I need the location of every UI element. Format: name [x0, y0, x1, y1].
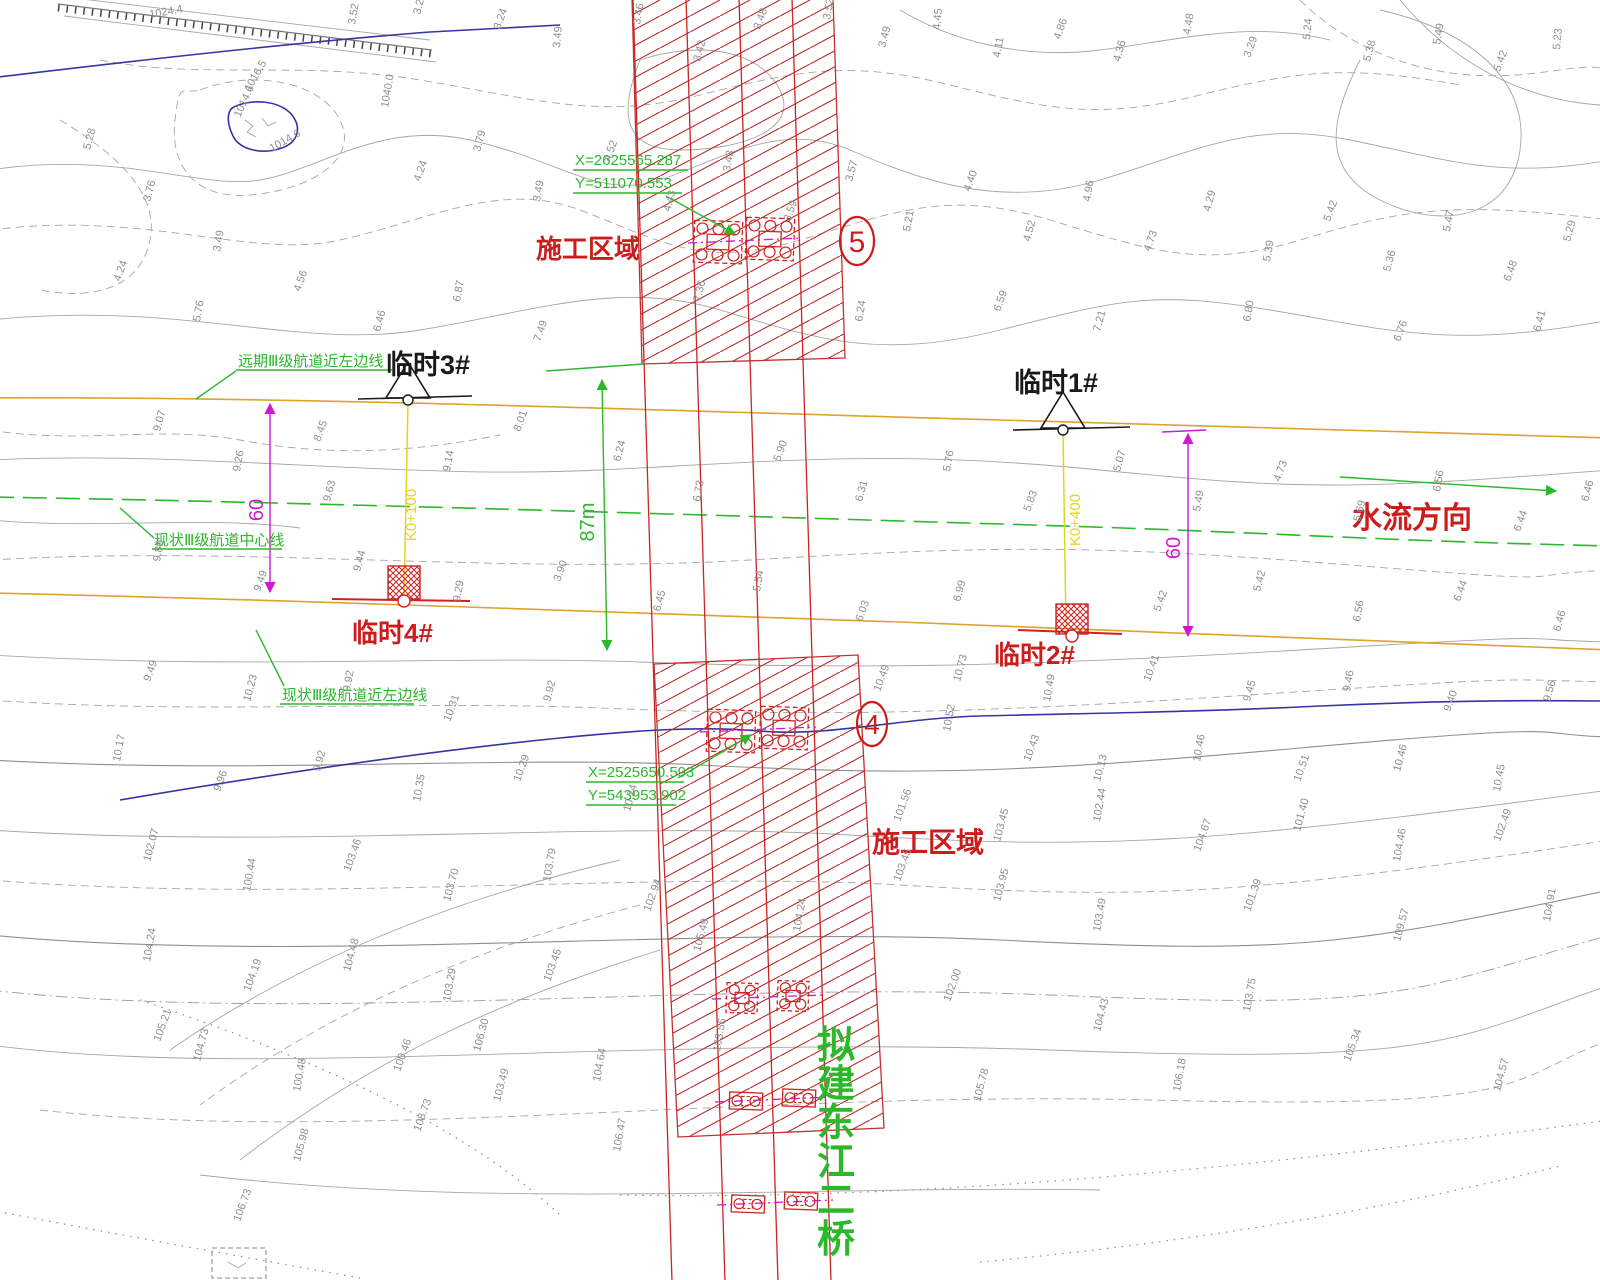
- survey-line-right: [1063, 432, 1066, 628]
- spot-elevation: 5.83: [1022, 489, 1041, 513]
- spot-elevation: 4.29: [1201, 189, 1218, 213]
- spot-elevation: 5.24: [1301, 18, 1315, 40]
- spot-elevation: 10.51: [1292, 753, 1313, 783]
- spot-elevation: 104.64: [591, 1047, 609, 1082]
- spot-elevation: 3.52: [346, 2, 362, 25]
- pier-number-4: 4: [864, 709, 880, 740]
- spot-elevation: 106.47: [611, 1117, 629, 1152]
- spot-elevation: 104.73: [191, 1027, 211, 1063]
- spot-elevation: 6.44: [1512, 509, 1531, 533]
- spot-elevation: 5.49: [1431, 22, 1447, 45]
- spot-elevation: 5.54: [751, 569, 767, 592]
- spot-elevation: 3.90: [552, 559, 571, 583]
- spot-elevation: 4.11: [991, 36, 1006, 58]
- spot-elevation: 4.36: [1111, 39, 1128, 63]
- temp4-label: 临时4#: [352, 618, 433, 648]
- survey-station-temp4: [332, 566, 470, 607]
- spot-elevation: 106.18: [1171, 1057, 1189, 1092]
- spot-elevation: 108.73: [412, 1097, 435, 1133]
- spot-elevation: 10.29: [512, 753, 533, 783]
- hatched-square-symbol: [388, 566, 420, 599]
- spot-elevation: 3.49: [551, 26, 565, 48]
- spot-elevation: 6.24: [611, 439, 628, 463]
- spot-elevation: 9.92: [311, 749, 328, 773]
- dimension-value: 60: [246, 499, 268, 521]
- spot-elevation: 10.13: [1091, 753, 1110, 783]
- spot-elevation: 103.29: [441, 967, 459, 1002]
- railway-rail: [58, 4, 432, 50]
- spot-elevation: 9.29: [451, 579, 467, 602]
- spot-elevation: 9.92: [541, 679, 558, 703]
- spot-elevation: 104.91: [1541, 887, 1559, 922]
- spot-elevation: 5.42: [1251, 569, 1268, 593]
- survey-station-temp2: [1018, 604, 1122, 642]
- zone4-area-label: 施工区域: [872, 827, 984, 858]
- spot-elevation: 5.28: [81, 127, 98, 151]
- spot-elevation: 4.24: [412, 159, 431, 183]
- spot-elevation: 105.21: [152, 1007, 175, 1043]
- spot-elevation: 103.95: [991, 867, 1011, 903]
- spot-elevation: 6.41: [1531, 309, 1548, 333]
- spot-elevation: 3.76: [141, 179, 158, 203]
- spot-elevation: 102.44: [1091, 787, 1109, 822]
- spot-elevation: 10.45: [1491, 763, 1508, 792]
- railway-topleft: [0, 0, 560, 78]
- spot-elevation: 9.45: [1241, 679, 1258, 703]
- spot-elevation: 103.79: [541, 847, 559, 882]
- spot-elevation: 3.49: [531, 179, 547, 202]
- spot-elevation: 9.89: [151, 539, 167, 562]
- spot-elevation: 104.57: [1491, 1057, 1511, 1093]
- spot-elevation: 6.48: [1502, 259, 1521, 283]
- spot-elevation: 8.45: [312, 419, 331, 443]
- spot-elevation: 104.43: [1091, 997, 1111, 1033]
- temp2-label: 临时2#: [994, 640, 1075, 670]
- spot-elevation: 10.17: [111, 733, 128, 762]
- spot-elevation: 4.45: [931, 8, 945, 30]
- spot-elevation: 6.03: [854, 599, 873, 623]
- spot-elevation: 5.21: [901, 209, 917, 232]
- spot-elevation: 6.31: [853, 479, 870, 503]
- spot-elevation: 10.49: [872, 663, 893, 693]
- spot-elevation: 9.44: [351, 549, 368, 573]
- spot-elevation: 10.73: [951, 653, 970, 683]
- label-leader: [256, 630, 284, 686]
- spot-elevation: 10.43: [1022, 733, 1043, 763]
- spot-elevation: 8.01: [512, 409, 531, 433]
- spot-elevation: 6.46: [1579, 479, 1596, 503]
- spot-elevation: 6.46: [1551, 609, 1568, 633]
- survey-station-temp3: [358, 362, 472, 598]
- spot-elevation: 10.46: [1191, 733, 1208, 762]
- spot-elevation: 101.56: [892, 787, 915, 823]
- spot-elevation: 102.07: [141, 827, 161, 863]
- spot-elevation: 4.24: [112, 259, 131, 283]
- spot-elevation: 9.96: [212, 769, 231, 793]
- spot-elevation: 4.52: [1021, 219, 1038, 243]
- spot-elevation: 10.41: [1142, 653, 1163, 683]
- spot-elevation: 3.29: [1242, 35, 1261, 59]
- spot-elevation: 103.45: [991, 807, 1011, 843]
- spot-elevation: 9.49: [252, 569, 271, 593]
- spot-elevation: 9.14: [441, 449, 457, 472]
- flow-direction-label: 水流方向: [1352, 501, 1472, 535]
- spot-elevation: 5.29: [1561, 219, 1578, 243]
- spot-elevation: 9.63: [321, 479, 338, 503]
- spot-elevation: 6.80: [1241, 299, 1257, 322]
- spot-elevation: 6.59: [992, 289, 1011, 313]
- spot-elevation: 106.73: [232, 1187, 255, 1223]
- spot-elevation: 5.23: [1551, 28, 1565, 50]
- spot-elevation: 104.67: [1192, 817, 1215, 853]
- spot-elevation: 9.46: [1341, 669, 1357, 692]
- cad-site-plan: 60 60 87m 施工区域 5 施工区域 4 X=2625565.287 Y=…: [0, 0, 1600, 1280]
- spot-elevation: 9.49: [142, 659, 161, 683]
- spot-elevation: 105.98: [291, 1127, 311, 1163]
- spot-elevation: 4.73: [1272, 459, 1291, 483]
- spot-elevation: 6.99: [951, 579, 968, 603]
- spot-elevation: 105.78: [971, 1067, 991, 1103]
- dimension-value: 87m: [577, 503, 599, 542]
- spot-elevation: 4.56: [292, 269, 311, 293]
- spot-elevation: 5.90: [772, 439, 791, 463]
- spot-elevation: 102.49: [1492, 807, 1515, 843]
- spot-elevation: 9.56: [1541, 679, 1558, 703]
- station-left-label: K0+100: [403, 489, 420, 541]
- spot-elevation: 10.49: [1041, 673, 1058, 702]
- channel-near-left-edge-label: 现状Ⅲ级航道近左边线: [282, 687, 427, 704]
- spot-elevation: 103.75: [1241, 977, 1259, 1012]
- spot-elevation: 6.44: [1452, 579, 1471, 603]
- spot-elevation: 6.46: [371, 309, 388, 333]
- spot-elevation: 10.46: [1391, 743, 1410, 773]
- coord-top-y: Y=511070.553: [575, 175, 672, 192]
- spot-elevation: 102.00: [942, 967, 965, 1003]
- railway-ticks: [58, 8, 432, 54]
- spot-elevation: 6.45: [651, 589, 668, 613]
- spot-elevation: 104.19: [242, 957, 265, 993]
- spot-elevation: 6.56: [1351, 599, 1367, 622]
- spot-elevation: 5.76: [941, 449, 957, 472]
- spot-elevation: 106.30: [471, 1017, 491, 1053]
- spot-elevation: 7.21: [1091, 309, 1108, 333]
- dimension-value: 60: [1163, 537, 1185, 559]
- spot-elevation: 103.49: [491, 1067, 511, 1103]
- spot-elevation: 5.07: [1111, 449, 1128, 473]
- spot-elevation: 5.39: [1261, 239, 1277, 262]
- spot-elevation: 104.48: [341, 937, 361, 973]
- spot-elevation: 101.39: [1242, 877, 1265, 913]
- spot-elevation: 4.96: [1081, 179, 1097, 202]
- spot-elevation: 5.76: [191, 299, 207, 322]
- channel-far-left-edge-label: 远期Ⅲ级航道近左边线: [238, 353, 383, 370]
- spot-elevation: 9.07: [151, 409, 168, 433]
- flow-arrow-line: [1340, 477, 1556, 491]
- station-right-label: K0+400: [1067, 494, 1084, 546]
- temp3-label: 临时3#: [386, 349, 470, 380]
- spot-elevation: 1014.6: [268, 127, 303, 154]
- spot-elevation: 10.23: [241, 673, 260, 703]
- label-leader: [196, 371, 236, 399]
- spot-elevation: 4.86: [1052, 17, 1071, 41]
- spot-elevation: 6.24: [853, 299, 869, 322]
- spot-elevation: 3.52: [821, 0, 837, 21]
- spot-elevation: 3.28: [411, 0, 428, 16]
- spot-elevation: 5.42: [1322, 199, 1341, 223]
- spot-elevation: 3.79: [471, 129, 488, 153]
- spot-elevation: 10.31: [442, 693, 463, 723]
- temp1-label: 临时1#: [1014, 367, 1098, 398]
- spot-elevation: 6.76: [1392, 319, 1411, 343]
- spot-elevation: 6.56: [1431, 469, 1447, 492]
- channel-centerline-label: 现状Ⅲ级航道中心线: [154, 532, 284, 549]
- spot-elevation: 104.46: [1391, 827, 1409, 862]
- spot-elevation: 6.73: [691, 479, 707, 502]
- channel-upper-edge-line: [0, 398, 1600, 438]
- spot-elevation: 103.46: [342, 837, 365, 873]
- drawing-canvas: 60 60 87m 施工区域 5 施工区域 4 X=2625565.287 Y=…: [0, 0, 1600, 1280]
- spot-elevation: 5.42: [1492, 49, 1511, 73]
- spot-elevation: 5.49: [1191, 489, 1207, 512]
- spot-elevation: 103.49: [1091, 897, 1109, 932]
- spot-elevation: 3.57: [843, 159, 860, 183]
- spot-elevation: 10.52: [941, 703, 958, 732]
- spot-elevation: 3.49: [876, 25, 893, 49]
- coord-top-x: X=2625565.287: [575, 152, 681, 169]
- spot-elevation: 5.38: [1361, 39, 1378, 63]
- spot-elevation: 5.36: [1381, 249, 1398, 273]
- spot-elevation: 5.42: [1152, 589, 1171, 613]
- spot-elevation: 109.57: [1391, 907, 1411, 943]
- spot-elevation: 105.34: [1342, 1027, 1365, 1063]
- dimension-right-60: 60: [1162, 430, 1206, 636]
- spot-elevation: 103.70: [441, 867, 461, 903]
- spot-elevation: 7.49: [532, 319, 551, 343]
- spot-elevation: 100.46: [392, 1037, 415, 1073]
- zone5-area-label: 施工区域: [536, 234, 640, 264]
- pier-number-5: 5: [849, 226, 866, 259]
- spot-elevation: 4.73: [1142, 229, 1161, 253]
- spot-elevation: 103.45: [542, 947, 565, 983]
- spot-elevation: 9.26: [231, 449, 247, 472]
- spot-elevation: 6.87: [451, 279, 467, 302]
- dimension-left-60: 60: [246, 404, 270, 592]
- spot-elevation: 4.48: [1181, 12, 1197, 35]
- bridge-name-label: 拟建东江二桥: [817, 1025, 855, 1261]
- spot-elevation: 100.44: [241, 857, 259, 892]
- spot-elevation: 10.35: [411, 773, 428, 802]
- canal-line: [0, 25, 560, 78]
- spot-elevation: 100.48: [291, 1057, 309, 1092]
- spot-elevation: 1040.0: [379, 73, 397, 108]
- spot-elevation: 5.47: [1441, 209, 1457, 232]
- spot-elevation: 3.49: [211, 229, 227, 252]
